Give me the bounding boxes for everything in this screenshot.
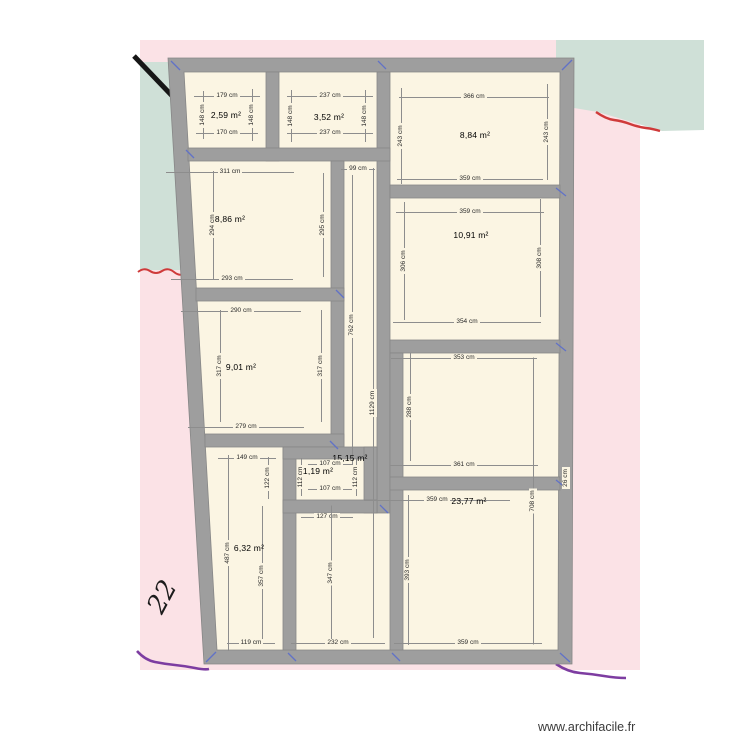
dimension-label: 288 cm	[406, 353, 414, 461]
dimension-text: 357 cm	[258, 563, 266, 588]
dimension-text: 359 cm	[455, 639, 480, 647]
dimension-label: 317 cm	[317, 310, 325, 422]
dimension-label: 306 cm	[400, 202, 408, 320]
dimension-text: 317 cm	[317, 353, 325, 378]
dimension-text: 170 cm	[214, 129, 239, 137]
dimension-label: 243 cm	[543, 84, 551, 180]
room-1-19-area-label: 1,19 m²	[303, 466, 333, 476]
dimension-text: 237 cm	[317, 129, 342, 137]
dimension-text: 317 cm	[216, 353, 224, 378]
dimension-label: 232 cm	[291, 639, 385, 647]
dimension-label: 311 cm	[166, 168, 294, 176]
dimension-label: 317 cm	[216, 310, 224, 422]
dimension-label: 1129 cm	[369, 168, 377, 638]
dimension-text: 354 cm	[454, 318, 479, 326]
room-23-77-area-label: 23,77 m²	[451, 496, 486, 506]
dimension-text: 148 cm	[361, 103, 369, 128]
dimension-label: 366 cm	[399, 93, 549, 101]
dimension-label: 148 cm	[248, 89, 256, 141]
dimension-text: 148 cm	[287, 103, 295, 128]
room-9-01-area-label: 9,01 m²	[226, 362, 256, 372]
dimension-label: 148 cm	[199, 91, 207, 139]
dimension-text: 361 cm	[451, 461, 476, 469]
dimension-text: 708 cm	[529, 488, 537, 513]
dimension-label: 148 cm	[287, 90, 295, 142]
dimension-label: 359 cm	[394, 639, 542, 647]
dimension-text: 148 cm	[248, 102, 256, 127]
dimension-text: 306 cm	[400, 248, 408, 273]
dimension-label: 354 cm	[393, 318, 541, 326]
dimension-label: 361 cm	[390, 461, 538, 469]
dimension-label: 294 cm	[209, 171, 217, 279]
room-10-91-area-label: 10,91 m²	[453, 230, 488, 240]
floorplan-canvas: 179 cm170 cm148 cm148 cm2,59 m²237 cm237…	[0, 0, 750, 750]
dimension-label: 290 cm	[181, 307, 301, 315]
dimension-label: 487 cm	[224, 455, 232, 651]
dimension-text: 1129 cm	[369, 389, 377, 417]
dimension-text: 279 cm	[233, 423, 258, 431]
dimension-text: 237 cm	[317, 92, 342, 100]
dimension-text: 179 cm	[214, 92, 239, 100]
dimension-text: 148 cm	[199, 102, 207, 127]
room-6-32-area-label: 6,32 m²	[234, 543, 264, 553]
dimension-text: 119 cm	[239, 639, 264, 647]
dimension-text: 347 cm	[327, 560, 335, 585]
dimension-text: 308 cm	[536, 245, 544, 270]
dimension-text: 122 cm	[264, 465, 272, 490]
plan-labels-layer: 179 cm170 cm148 cm148 cm2,59 m²237 cm237…	[0, 0, 750, 750]
dimension-text: 232 cm	[325, 639, 350, 647]
dimension-text: 107 cm	[317, 485, 342, 493]
dimension-text: 26 cm	[562, 467, 570, 489]
dimension-text: 290 cm	[228, 307, 253, 315]
dimension-label: 308 cm	[536, 199, 544, 317]
dimension-label: 708 cm	[529, 358, 537, 645]
dimension-text: 243 cm	[543, 119, 551, 144]
dimension-label: 293 cm	[171, 275, 293, 283]
dimension-text: 112 cm	[352, 465, 360, 490]
dimension-text: 762 cm	[348, 312, 356, 337]
dimension-label: 762 cm	[348, 175, 356, 475]
dimension-text: 366 cm	[461, 93, 486, 101]
dimension-label: 295 cm	[319, 173, 327, 277]
dimension-text: 243 cm	[397, 123, 405, 148]
dimension-text: 353 cm	[451, 354, 476, 362]
dimension-label: 279 cm	[188, 423, 304, 431]
dimension-label: 148 cm	[361, 90, 369, 142]
dimension-label: 112 cm	[297, 458, 305, 496]
dimension-text: 288 cm	[406, 394, 414, 419]
dimension-label: 122 cm	[264, 457, 272, 499]
room-2-59-area-label: 2,59 m²	[211, 110, 241, 120]
room-3-52-area-label: 3,52 m²	[314, 112, 344, 122]
dimension-label: 26 cm	[562, 468, 570, 488]
dimension-label: 359 cm	[364, 496, 510, 504]
dimension-text: 295 cm	[319, 212, 327, 237]
room-8-84-area-label: 8,84 m²	[460, 130, 490, 140]
dimension-text: 311 cm	[218, 168, 243, 176]
dimension-text: 359 cm	[457, 175, 482, 183]
dimension-text: 359 cm	[424, 496, 449, 504]
dimension-label: 393 cm	[404, 495, 412, 645]
room-8-86-area-label: 8,86 m²	[215, 214, 245, 224]
dimension-label: 359 cm	[396, 208, 544, 216]
dimension-label: 119 cm	[227, 639, 275, 647]
dimension-label: 107 cm	[308, 485, 352, 493]
dimension-label: 357 cm	[258, 506, 266, 646]
dimension-text: 99 cm	[347, 165, 369, 173]
dimension-label: 359 cm	[397, 175, 543, 183]
dimension-label: 243 cm	[397, 88, 405, 184]
dimension-text: 149 cm	[234, 454, 259, 462]
dimension-text: 487 cm	[224, 540, 232, 565]
dimension-text: 359 cm	[457, 208, 482, 216]
watermark: www.archifacile.fr	[538, 720, 635, 734]
dimension-text: 293 cm	[219, 275, 244, 283]
dimension-text: 393 cm	[404, 557, 412, 582]
dimension-label: 347 cm	[327, 506, 335, 641]
dimension-label: 112 cm	[352, 458, 360, 496]
